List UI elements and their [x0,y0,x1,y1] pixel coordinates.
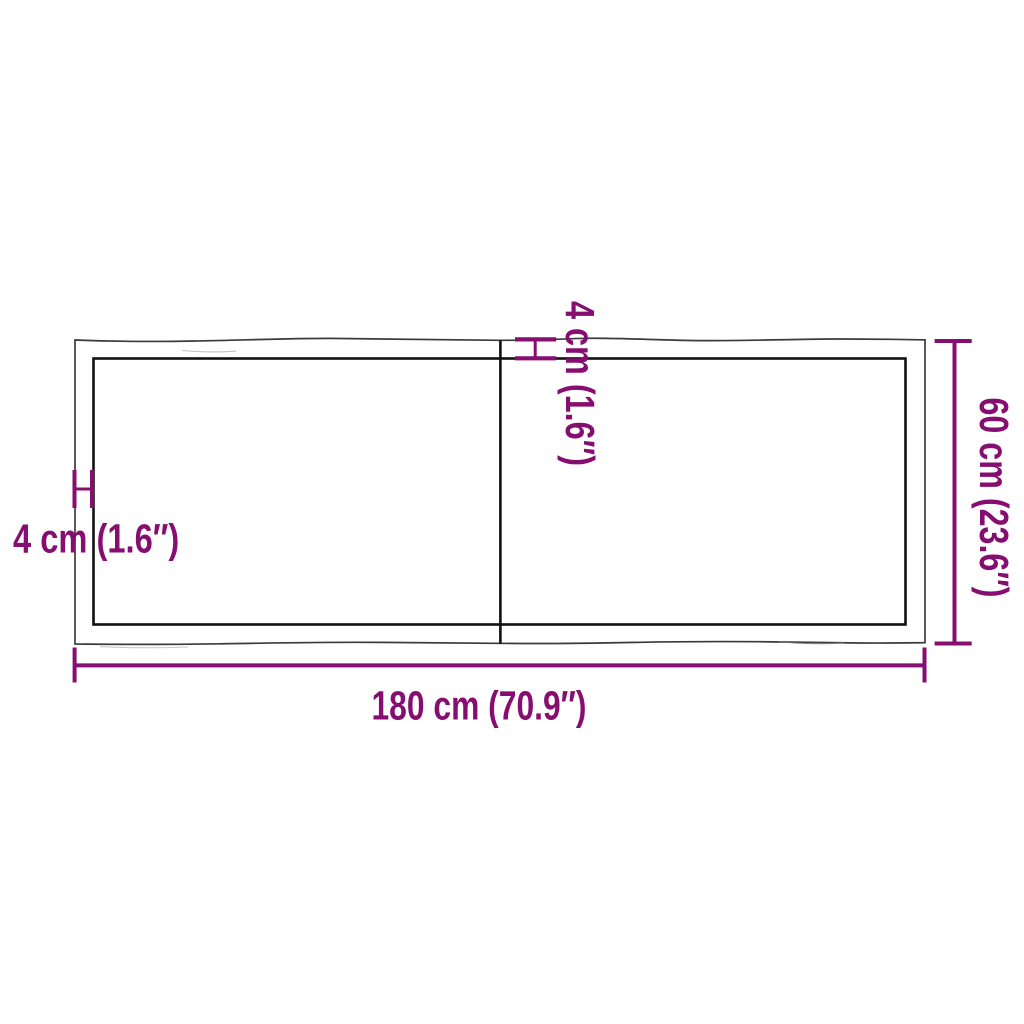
svg-text:180 cm (70.9″): 180 cm (70.9″) [372,683,587,729]
svg-text:4 cm (1.6″): 4 cm (1.6″) [13,516,179,562]
svg-text:4 cm (1.6″): 4 cm (1.6″) [557,301,603,466]
svg-text:60 cm (23.6″): 60 cm (23.6″) [971,398,1017,598]
